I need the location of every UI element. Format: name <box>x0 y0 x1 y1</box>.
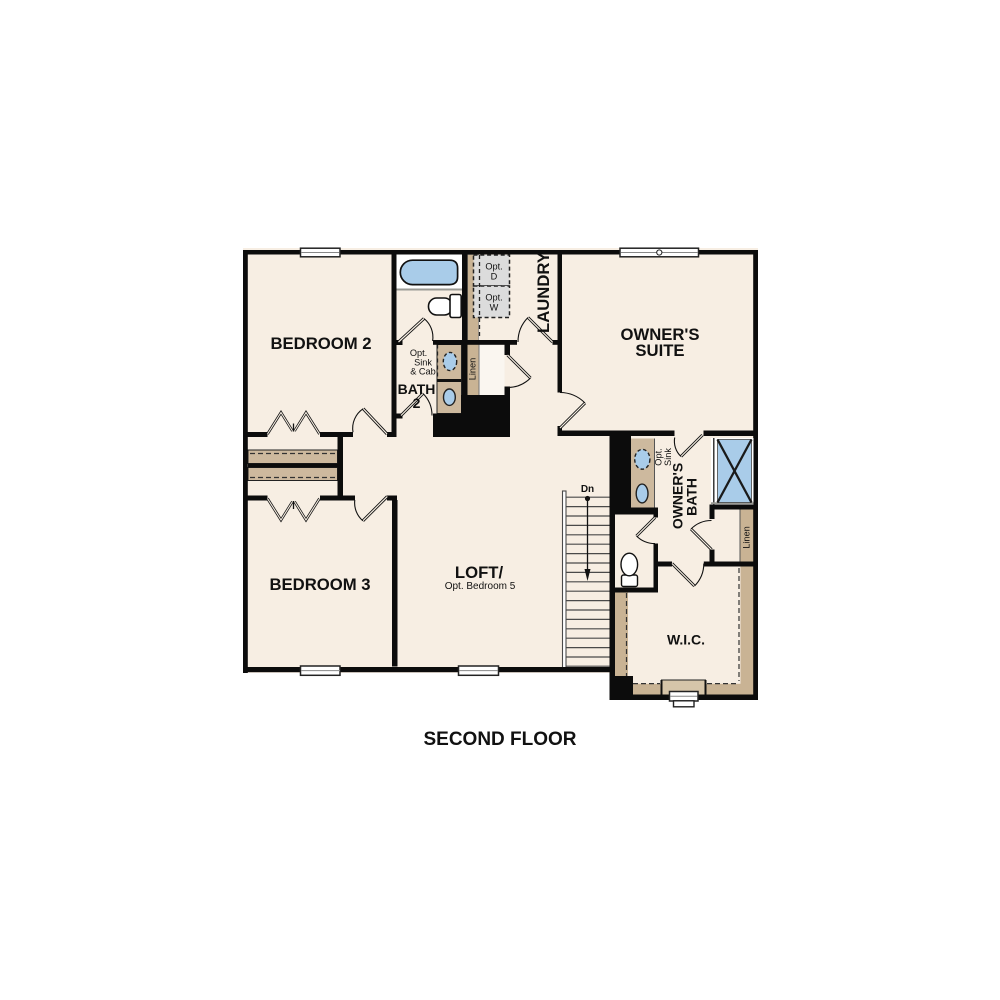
svg-text:W: W <box>490 303 499 313</box>
svg-text:LOFT/: LOFT/ <box>455 563 504 582</box>
svg-text:2: 2 <box>413 395 421 411</box>
svg-text:BEDROOM 2: BEDROOM 2 <box>270 334 371 353</box>
svg-text:Dn: Dn <box>581 484 594 495</box>
svg-text:Linen: Linen <box>742 526 752 548</box>
svg-text:Opt. Bedroom 5: Opt. Bedroom 5 <box>445 581 516 592</box>
svg-text:W.I.C.: W.I.C. <box>667 632 705 648</box>
svg-text:Opt.: Opt. <box>485 293 502 303</box>
svg-text:Opt.: Opt. <box>410 348 427 358</box>
svg-text:BEDROOM 3: BEDROOM 3 <box>269 575 370 594</box>
svg-text:& Cab: & Cab <box>410 367 436 377</box>
svg-text:LAUNDRY: LAUNDRY <box>534 252 553 333</box>
svg-text:SECOND FLOOR: SECOND FLOOR <box>423 729 576 750</box>
svg-text:Opt.: Opt. <box>485 262 502 272</box>
svg-text:Opt.: Opt. <box>654 448 664 465</box>
svg-text:BATH: BATH <box>684 478 700 516</box>
svg-text:SUITE: SUITE <box>635 341 684 360</box>
svg-text:Sink: Sink <box>663 448 673 466</box>
svg-text:Linen: Linen <box>468 358 478 380</box>
svg-text:D: D <box>491 272 498 282</box>
